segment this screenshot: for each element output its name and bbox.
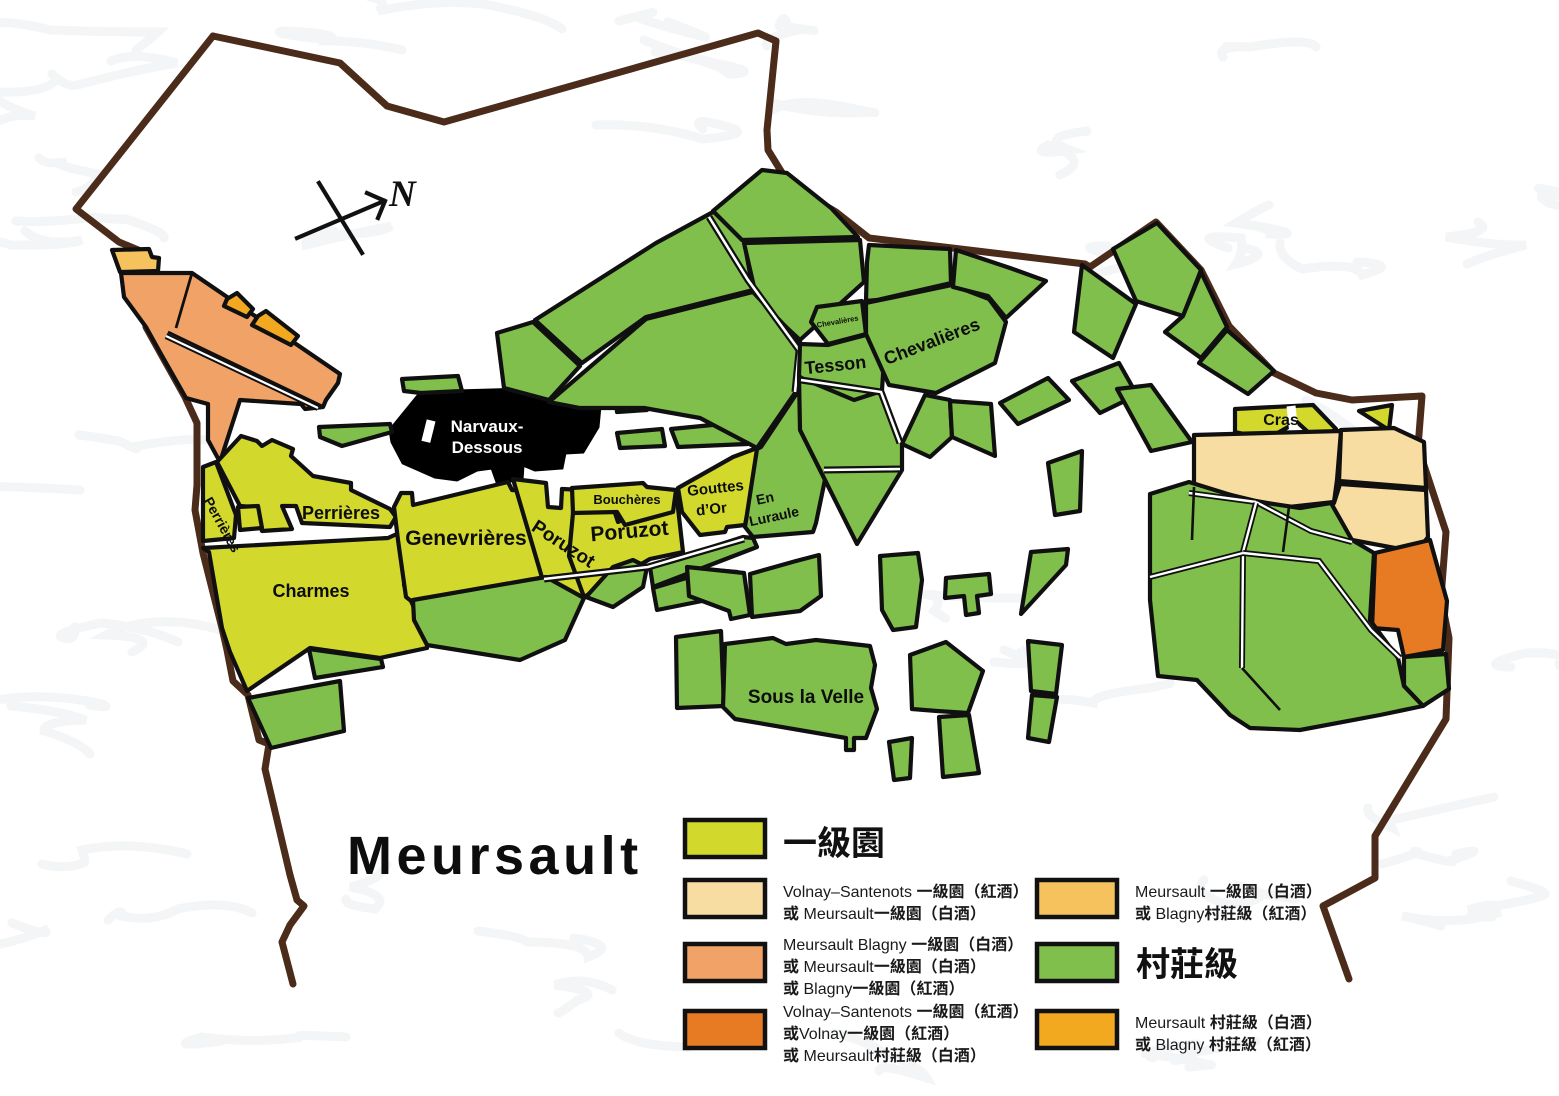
svg-text:Meursault: Meursault [804,959,875,976]
svg-text:Bouchères: Bouchères [593,492,660,507]
svg-text:Meursault: Meursault [804,906,875,923]
svg-text:Meursault: Meursault [1135,884,1206,901]
svg-text:Sous la Velle: Sous la Velle [748,687,864,708]
svg-text:Meursault: Meursault [804,1048,875,1065]
svg-text:Perrières: Perrières [302,503,380,523]
svg-text:Blagny: Blagny [1156,906,1205,923]
svg-text:d’Or: d’Or [695,499,728,519]
svg-text:Volnay–Santenots: Volnay–Santenots [783,1004,912,1021]
svg-text:Meursault: Meursault [347,826,643,886]
svg-text:N: N [388,174,417,215]
svg-text:Volnay–Santenots: Volnay–Santenots [783,884,912,901]
svg-text:Meursault Blagny: Meursault Blagny [783,937,907,954]
svg-text:Cras: Cras [1263,412,1299,429]
svg-text:Genevrières: Genevrières [405,527,526,550]
svg-text:Dessous: Dessous [452,438,523,457]
svg-text:Blagny: Blagny [804,981,853,998]
svg-text:Narvaux-: Narvaux- [451,417,524,436]
svg-text:Meursault: Meursault [1135,1015,1206,1032]
svg-text:Blagny: Blagny [1156,1037,1205,1054]
svg-text:Charmes: Charmes [272,581,349,601]
svg-text:Volnay: Volnay [799,1026,847,1043]
